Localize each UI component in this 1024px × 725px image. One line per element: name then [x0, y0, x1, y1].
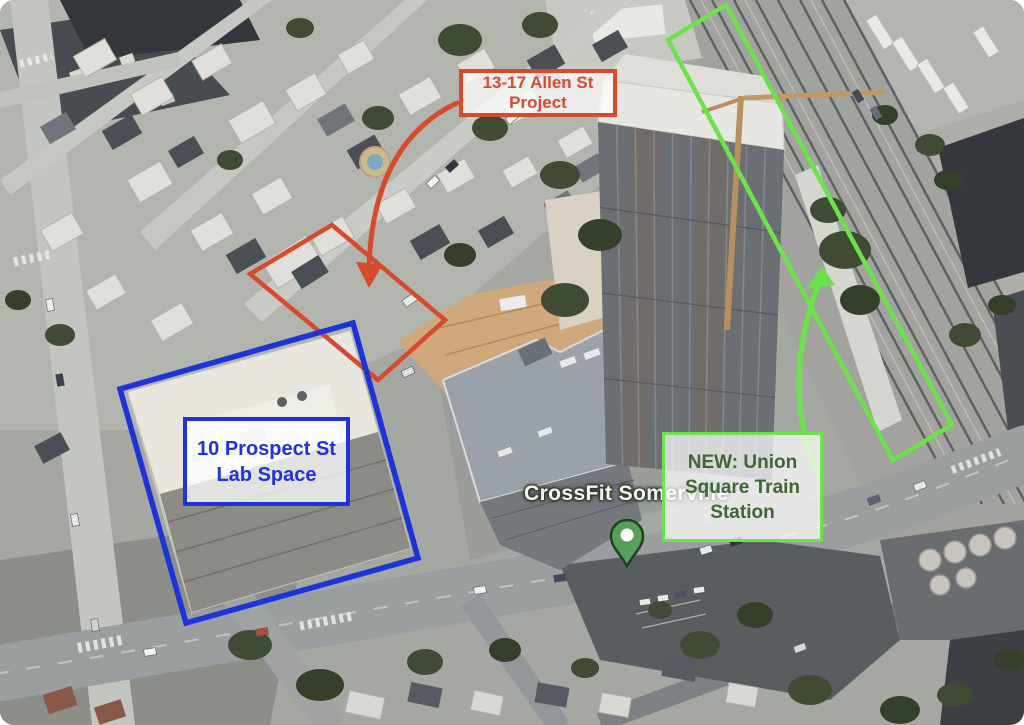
- pin-body-icon: [611, 520, 643, 566]
- allen-st-outline: [250, 225, 445, 380]
- allen-st-arrow: [369, 103, 457, 270]
- station-label-line3: Station: [710, 500, 774, 525]
- station-annotation: [668, 5, 952, 474]
- station-label-line2: Square Train: [685, 475, 800, 500]
- map-pin: [611, 520, 643, 566]
- station-label-line1: NEW: Union: [688, 450, 797, 475]
- station-outline: [668, 5, 952, 460]
- aerial-map: CrossFit Somerville 13-17 Allen St Proje…: [0, 0, 1024, 725]
- allen-st-label-line1: 13-17 Allen St: [483, 73, 594, 93]
- prospect-label-line2: Lab Space: [216, 462, 316, 488]
- allen-st-arrowhead: [356, 262, 383, 288]
- prospect-label-line1: 10 Prospect St: [197, 436, 336, 462]
- prospect-label: 10 Prospect St Lab Space: [183, 417, 350, 506]
- allen-st-annotation: [250, 103, 457, 380]
- allen-st-label: 13-17 Allen St Project: [459, 69, 617, 117]
- pin-hole-icon: [621, 529, 634, 542]
- station-arrowhead: [806, 266, 835, 289]
- station-label: NEW: Union Square Train Station: [662, 432, 823, 542]
- allen-st-label-line2: Project: [509, 93, 567, 113]
